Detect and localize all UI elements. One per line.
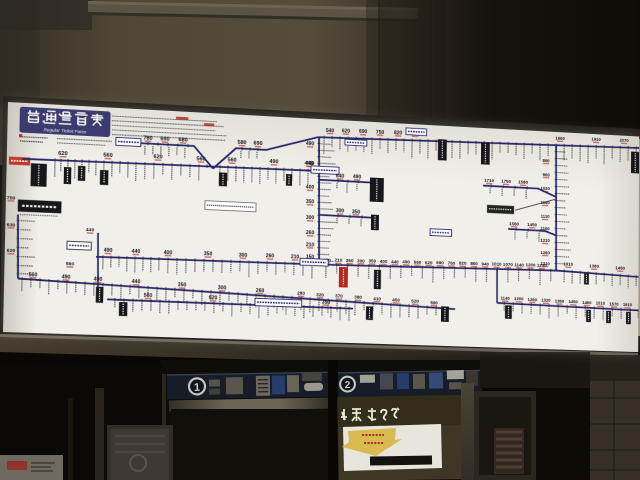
svg-text:1360: 1360 <box>555 299 565 304</box>
svg-text:1660: 1660 <box>555 136 565 141</box>
svg-text:1910: 1910 <box>592 137 602 142</box>
svg-text:1: 1 <box>194 382 200 394</box>
svg-text:1570: 1570 <box>609 302 619 307</box>
svg-text:1450: 1450 <box>569 299 579 304</box>
svg-text:1310: 1310 <box>540 261 550 266</box>
svg-text:890: 890 <box>543 158 550 163</box>
svg-text:1140: 1140 <box>501 296 511 301</box>
svg-text:1260: 1260 <box>528 297 538 302</box>
svg-text:1610: 1610 <box>623 302 633 307</box>
svg-text:1210: 1210 <box>540 238 550 243</box>
svg-text:1510: 1510 <box>596 301 606 306</box>
svg-text:1200: 1200 <box>514 296 524 301</box>
svg-text:2: 2 <box>345 380 351 391</box>
svg-text:1110: 1110 <box>541 214 550 219</box>
svg-text:1460: 1460 <box>582 300 592 305</box>
svg-text:1320: 1320 <box>541 298 551 303</box>
svg-text:1260: 1260 <box>540 250 550 255</box>
svg-text:960: 960 <box>543 172 550 177</box>
svg-text:2070: 2070 <box>620 138 630 143</box>
